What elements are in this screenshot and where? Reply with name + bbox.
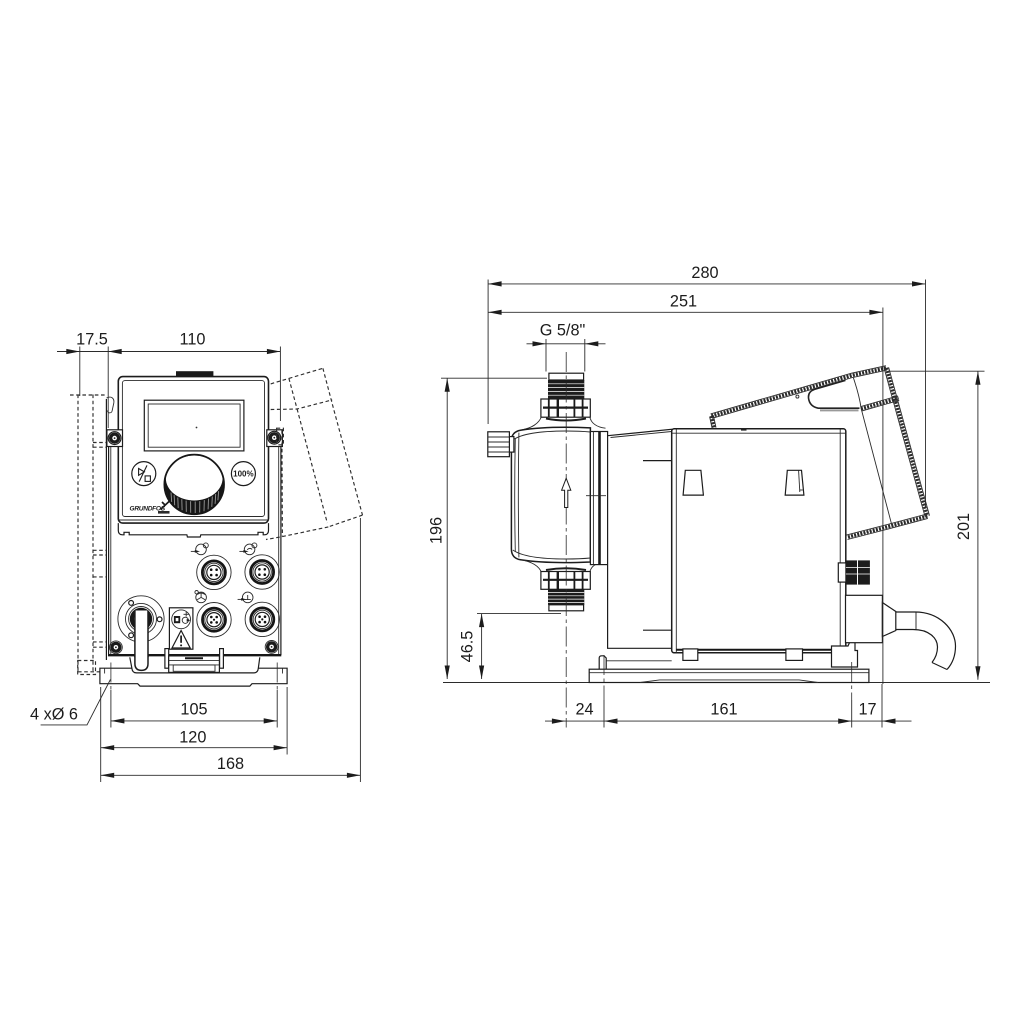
svg-text:251: 251 — [670, 293, 697, 311]
svg-text:196: 196 — [428, 517, 446, 544]
svg-text:105: 105 — [180, 701, 207, 719]
svg-text:161: 161 — [710, 701, 737, 719]
svg-text:280: 280 — [691, 264, 718, 282]
svg-text:17: 17 — [858, 701, 876, 719]
svg-text:100%: 100% — [233, 470, 253, 479]
svg-text:4 xØ 6: 4 xØ 6 — [30, 706, 78, 724]
svg-text:G 5/8": G 5/8" — [540, 322, 586, 340]
svg-text:24: 24 — [575, 701, 593, 719]
svg-text:17.5: 17.5 — [76, 331, 108, 349]
svg-text:120: 120 — [179, 729, 206, 747]
svg-text:201: 201 — [955, 513, 973, 540]
svg-text:110: 110 — [180, 331, 206, 349]
svg-text:46.5: 46.5 — [459, 631, 477, 663]
svg-text:168: 168 — [217, 755, 244, 773]
